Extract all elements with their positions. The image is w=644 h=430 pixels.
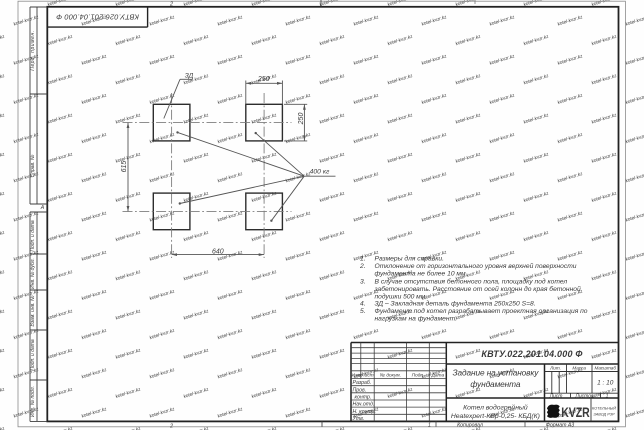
svg-text:Отклонение от горизонтального: Отклонение от горизонтального уровня вер… [375, 262, 577, 270]
svg-text:1: 1 [428, 423, 431, 429]
svg-text:забетонировать. Расстояние от: забетонировать. Расстояние от осей колон… [374, 285, 582, 293]
svg-text:Нач.отд.: Нач.отд. [353, 402, 375, 408]
svg-text:Размеры для справки.: Размеры для справки. [375, 255, 445, 263]
svg-text:контр.: контр. [355, 395, 372, 401]
svg-text:1.: 1. [360, 256, 366, 263]
svg-text:Фундамент под котел разрабатыв: Фундамент под котел разрабатывает проект… [375, 307, 588, 315]
svg-text:Разраб.: Разраб. [353, 380, 372, 386]
svg-text:Инв. № дубл.: Инв. № дубл. [30, 258, 36, 289]
svg-text:Копировал: Копировал [457, 423, 483, 429]
svg-text:фундамента: фундамента [470, 379, 520, 389]
svg-text:Изм: Изм [351, 373, 361, 379]
svg-text:Лит.: Лит. [549, 366, 561, 371]
svg-text:подушки 500 мм.: подушки 500 мм. [375, 292, 428, 300]
svg-text:KVZR: KVZR [561, 404, 590, 420]
svg-text:Масса: Масса [572, 366, 586, 371]
svg-text:Задание на установку: Задание на установку [452, 367, 539, 377]
svg-text:Подп. и дата: Подп. и дата [30, 220, 36, 252]
svg-text:2: 2 [169, 2, 173, 8]
svg-text:1: 1 [606, 393, 609, 399]
svg-text:В случае отсутствия бетонного: В случае отсутствия бетонного пола, площ… [375, 277, 568, 285]
svg-text:Heatexpert-КВр-0,25- КБД(К): Heatexpert-КВр-0,25- КБД(К) [451, 413, 540, 420]
svg-text:Масштаб: Масштаб [594, 366, 616, 371]
svg-text:Лист: Лист [360, 373, 373, 379]
svg-text:Подп. и дата: Подп. и дата [30, 339, 36, 371]
svg-text:Взам. инв. №: Взам. инв. № [30, 295, 36, 327]
svg-text:5.: 5. [360, 308, 366, 315]
svg-text:Утв.: Утв. [353, 416, 365, 422]
svg-text:Формат А3: Формат А3 [546, 423, 574, 429]
svg-text:№ докум.: № докум. [380, 373, 401, 379]
svg-text:Котел водогрейный: Котел водогрейный [463, 404, 528, 412]
svg-text:250: 250 [298, 113, 305, 126]
svg-text:Подп.: Подп. [412, 373, 425, 379]
svg-text:А: А [40, 205, 45, 211]
svg-text:фундамента не более 10 мм.: фундамента не более 10 мм. [375, 270, 468, 278]
svg-text:ЗД – Закладная деталь фундамен: ЗД – Закладная деталь фундамента 250х250… [375, 300, 536, 308]
svg-text:400 кг: 400 кг [310, 169, 330, 176]
svg-text:КОТЕЛЬНЫЙ: КОТЕЛЬНЫЙ [592, 407, 616, 411]
svg-text:нагрузкам на фундамент.: нагрузкам на фундамент. [375, 315, 458, 323]
svg-text:2: 2 [169, 424, 173, 430]
svg-text:КВТУ.022.201.04.000 Ф: КВТУ.022.201.04.000 Ф [481, 349, 582, 359]
svg-text:Дата: Дата [430, 373, 444, 379]
svg-text:2.: 2. [359, 263, 366, 270]
svg-text:615: 615 [121, 161, 128, 173]
svg-text:Листов: Листов [574, 393, 594, 399]
svg-text:ЗАВОД РЗР: ЗАВОД РЗР [593, 413, 615, 417]
svg-text:Пров.: Пров. [353, 387, 367, 393]
svg-text:Лист: Лист [549, 393, 563, 399]
svg-text:Инв. № подл.: Инв. № подл. [30, 386, 36, 417]
svg-text:Н. контр.: Н. контр. [353, 409, 376, 415]
svg-text:4.: 4. [360, 301, 366, 308]
svg-text:3.: 3. [360, 278, 366, 285]
svg-text:Перв. примен.: Перв. примен. [30, 30, 36, 70]
svg-text:1 : 10: 1 : 10 [597, 380, 614, 387]
svg-text:640: 640 [212, 249, 224, 256]
svg-text:КВТУ.026.201.04.000 Ф: КВТУ.026.201.04.000 Ф [56, 12, 139, 21]
svg-text:250: 250 [257, 76, 270, 83]
svg-text:Справ. №: Справ. № [30, 154, 36, 177]
svg-text:ЗД: ЗД [185, 73, 194, 80]
